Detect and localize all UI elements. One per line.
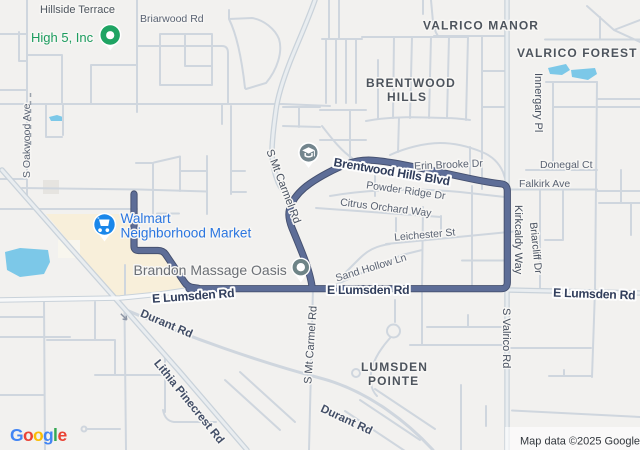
- svg-text:VALRICO FOREST: VALRICO FOREST: [517, 46, 638, 60]
- svg-text:Neighborhood Market: Neighborhood Market: [121, 225, 252, 240]
- svg-text:Hillside Terrace: Hillside Terrace: [40, 4, 115, 16]
- svg-text:S Valrico Rd: S Valrico Rd: [500, 308, 512, 368]
- svg-text:VALRICO MANOR: VALRICO MANOR: [423, 19, 539, 33]
- svg-text:Walmart: Walmart: [121, 211, 171, 226]
- svg-text:Donegal Ct: Donegal Ct: [540, 159, 593, 171]
- svg-text:HILLS: HILLS: [387, 90, 427, 104]
- svg-text:Map data ©2025 Google: Map data ©2025 Google: [520, 436, 640, 448]
- svg-text:S Oakwood Ave: S Oakwood Ave: [21, 103, 33, 178]
- svg-text:Innergary Pl: Innergary Pl: [532, 73, 544, 132]
- svg-text:Brandon Massage Oasis: Brandon Massage Oasis: [134, 262, 287, 278]
- svg-text:Briarwood Rd: Briarwood Rd: [140, 13, 204, 25]
- svg-text:LUMSDEN: LUMSDEN: [361, 360, 428, 374]
- svg-text:Kirkcaldy Way: Kirkcaldy Way: [512, 205, 524, 275]
- svg-text:E Lumsden Rd: E Lumsden Rd: [553, 286, 636, 303]
- svg-text:G: G: [10, 425, 24, 445]
- svg-text:High 5, Inc: High 5, Inc: [31, 30, 94, 45]
- svg-text:BRENTWOOD: BRENTWOOD: [366, 76, 456, 90]
- svg-text:E Lumsden Rd: E Lumsden Rd: [327, 283, 409, 297]
- svg-text:Falkirk Ave: Falkirk Ave: [519, 178, 570, 190]
- svg-text:e: e: [58, 425, 68, 445]
- svg-text:POINTE: POINTE: [368, 374, 419, 388]
